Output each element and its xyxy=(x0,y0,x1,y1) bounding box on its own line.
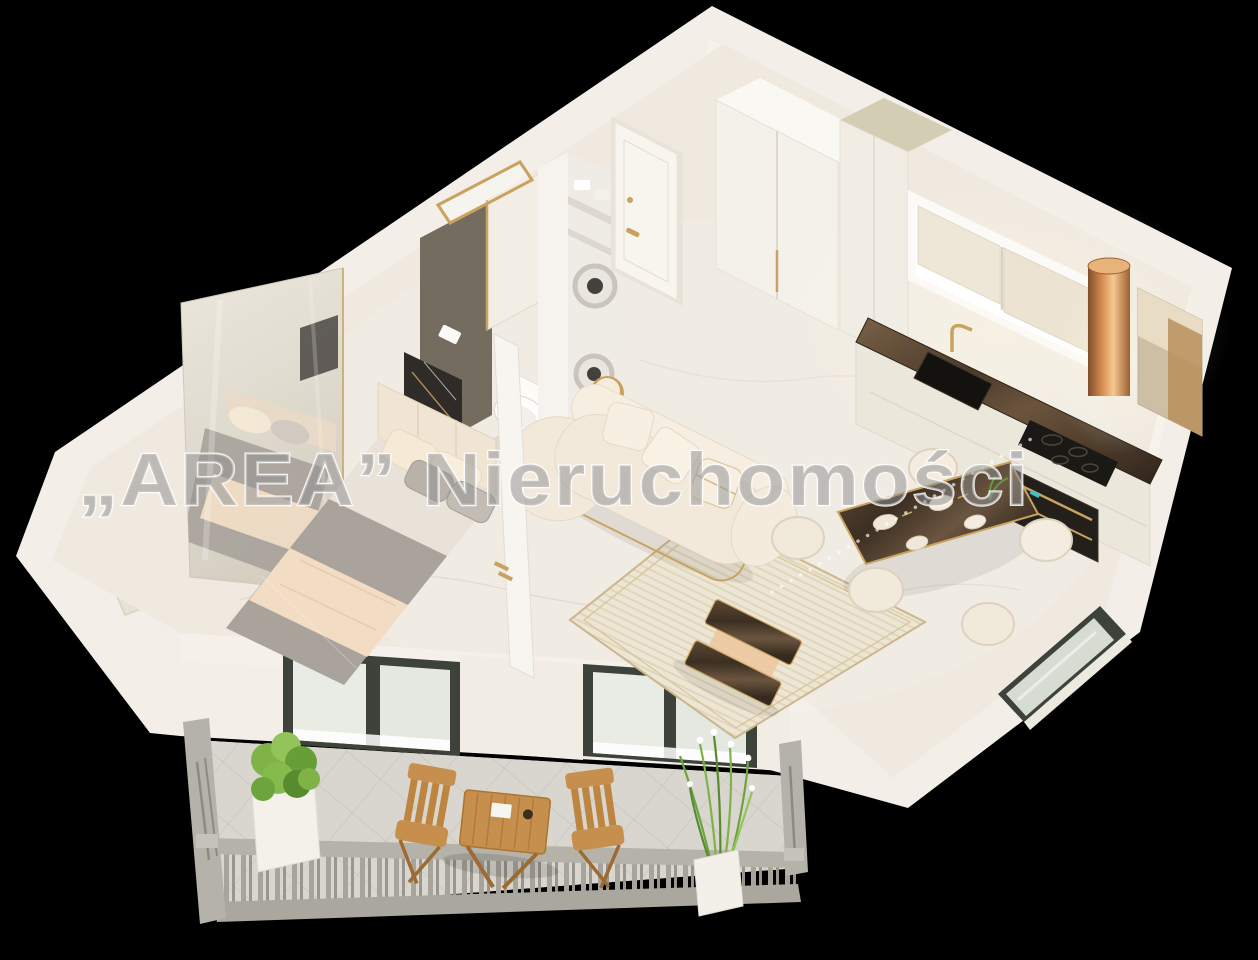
dining-chair-front-left xyxy=(849,568,903,612)
towel-stack xyxy=(594,190,610,200)
dining-chair-right xyxy=(1020,519,1072,561)
corner-post-cap xyxy=(196,834,218,848)
menu-card xyxy=(491,803,512,819)
column-side xyxy=(538,152,568,436)
planter-box-shrub xyxy=(251,732,320,872)
floor-plan-render: „AREA” Nieruchomości xyxy=(0,0,1258,960)
copper-range-hood xyxy=(1088,258,1130,396)
dining-chair-front-right xyxy=(962,603,1014,645)
watermark-text: „AREA” Nieruchomości xyxy=(78,438,1030,521)
cabinet-bronze-inner xyxy=(1168,318,1202,436)
corner-post-cap xyxy=(784,848,804,861)
dining-chair-left xyxy=(772,517,824,559)
planter-box xyxy=(694,850,743,916)
washer-door-glass xyxy=(587,278,603,294)
door-lock xyxy=(627,197,633,203)
apartment-3d-plan: „AREA” Nieruchomości xyxy=(0,0,1258,960)
towel-stack xyxy=(574,180,590,190)
